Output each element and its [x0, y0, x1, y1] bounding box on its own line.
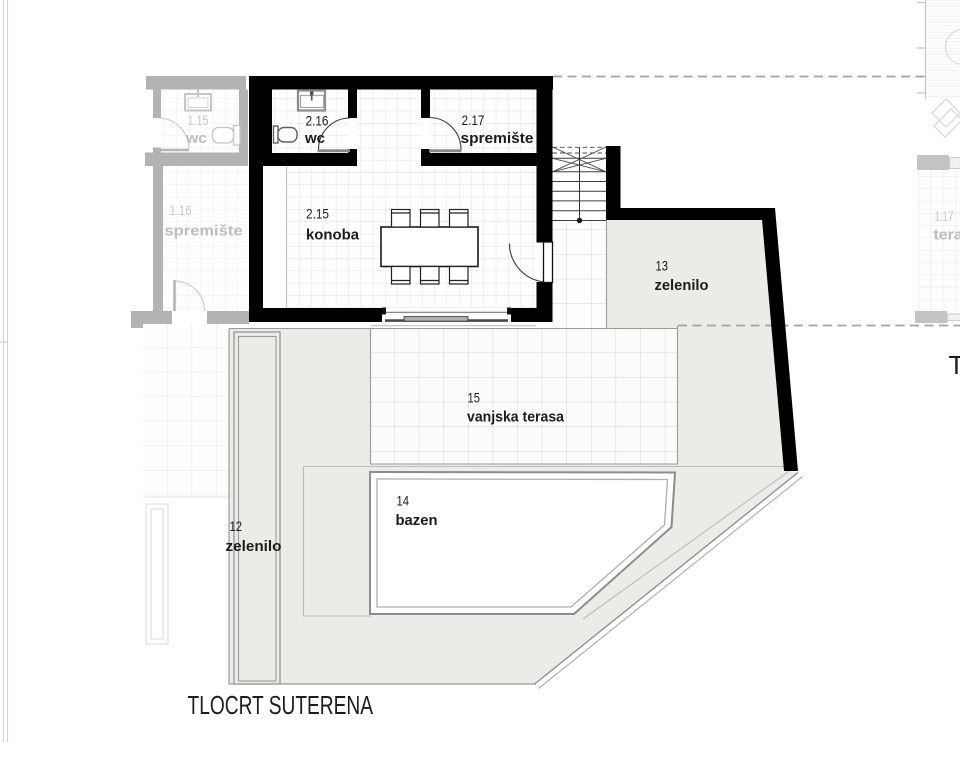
- svg-text:zelenilo: zelenilo: [226, 538, 282, 555]
- svg-text:spremište: spremište: [165, 223, 243, 240]
- svg-text:12: 12: [230, 518, 243, 534]
- svg-text:konoba: konoba: [306, 226, 360, 243]
- svg-text:vanjska terasa: vanjska terasa: [467, 409, 565, 426]
- svg-text:spremište: spremište: [461, 130, 534, 147]
- svg-text:terasa: terasa: [934, 227, 960, 244]
- svg-text:14: 14: [397, 493, 410, 509]
- svg-text:13: 13: [656, 258, 669, 274]
- svg-text:1.17: 1.17: [935, 208, 954, 224]
- svg-text:TLOCRT SUTERENA: TLOCRT SUTERENA: [188, 690, 374, 720]
- svg-text:2.17: 2.17: [462, 112, 485, 128]
- svg-text:2.16: 2.16: [306, 113, 329, 129]
- svg-text:1.16: 1.16: [170, 202, 192, 218]
- svg-text:TL: TL: [949, 350, 960, 380]
- svg-text:1.15: 1.15: [188, 112, 209, 128]
- svg-text:bazen: bazen: [396, 512, 438, 529]
- svg-text:15: 15: [468, 390, 481, 406]
- svg-text:zelenilo: zelenilo: [655, 277, 709, 294]
- svg-text:wc: wc: [304, 130, 325, 147]
- svg-text:wc: wc: [185, 130, 207, 147]
- svg-text:2.15: 2.15: [306, 205, 329, 221]
